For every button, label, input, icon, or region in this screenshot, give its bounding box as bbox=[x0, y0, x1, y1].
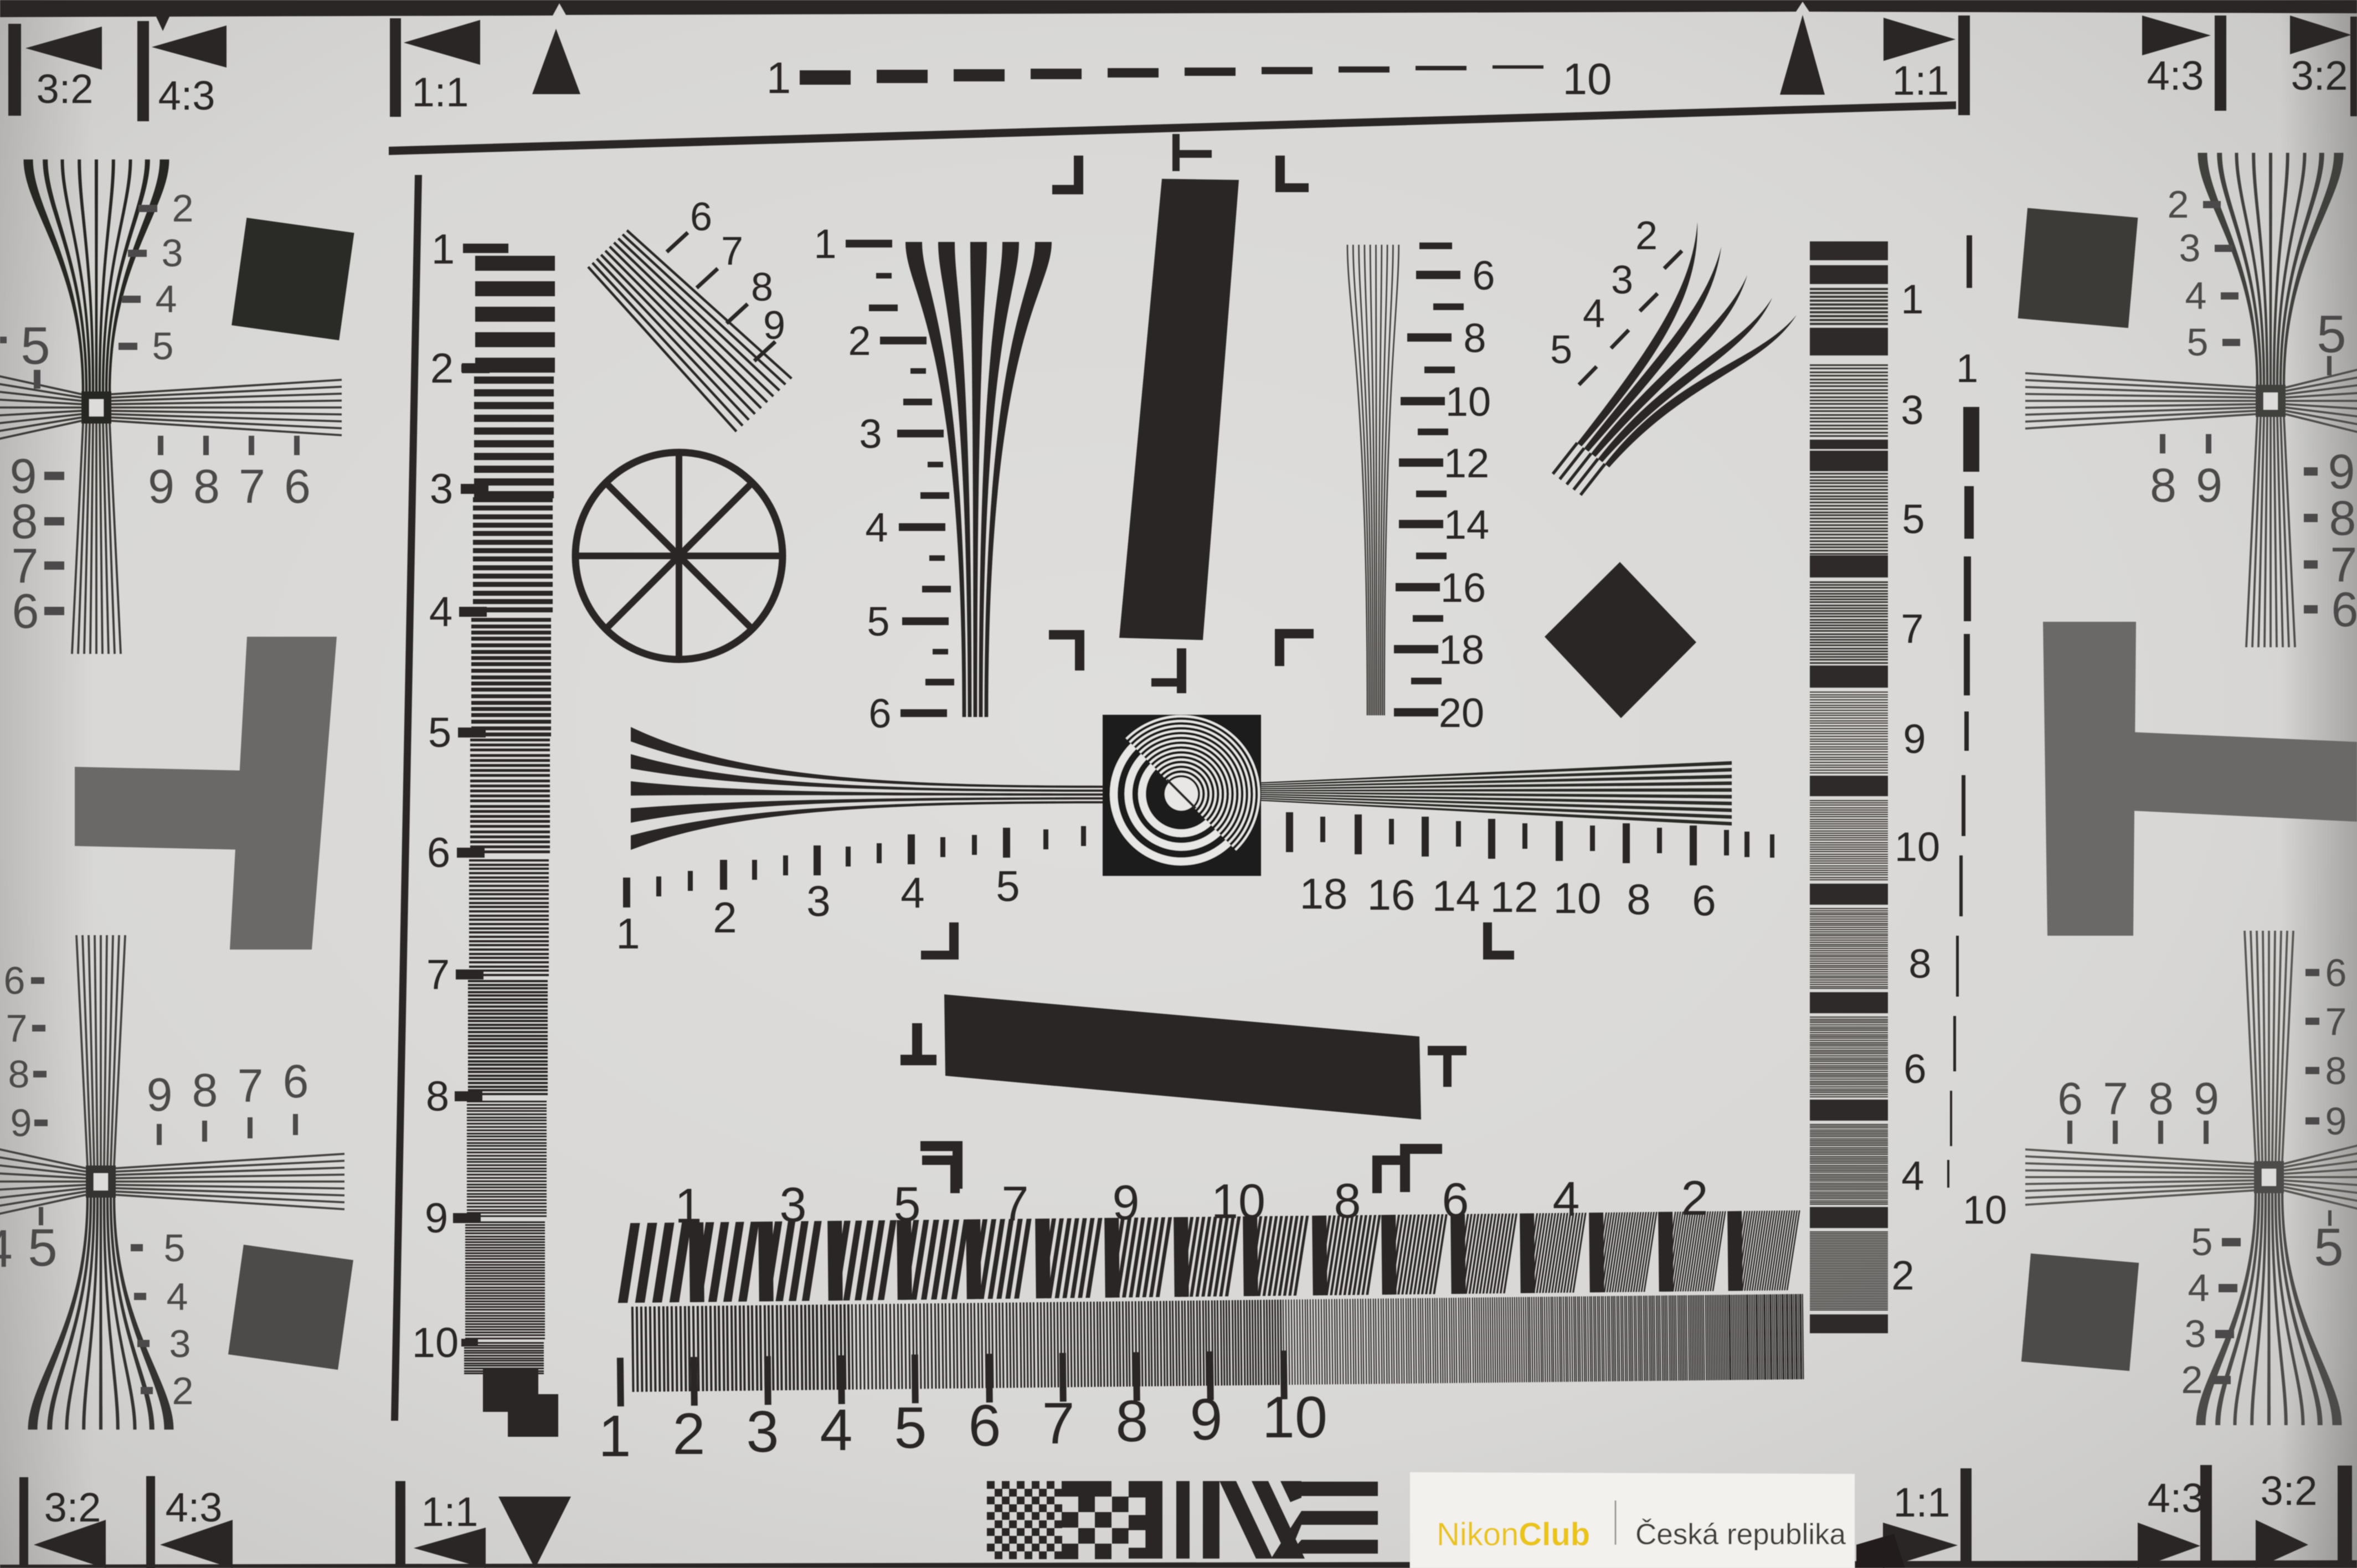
svg-text:14: 14 bbox=[1432, 871, 1480, 920]
svg-text:8: 8 bbox=[1463, 315, 1486, 361]
svg-text:6: 6 bbox=[283, 1055, 309, 1107]
svg-text:7: 7 bbox=[2325, 1000, 2347, 1043]
svg-text:4: 4 bbox=[865, 504, 888, 550]
svg-text:1: 1 bbox=[1901, 276, 1923, 322]
svg-text:6: 6 bbox=[2057, 1074, 2083, 1124]
svg-text:10: 10 bbox=[1262, 1385, 1327, 1450]
svg-text:5: 5 bbox=[164, 1226, 186, 1270]
svg-text:8: 8 bbox=[2325, 1049, 2347, 1092]
svg-text:2: 2 bbox=[848, 318, 871, 364]
svg-text:4: 4 bbox=[429, 589, 452, 636]
svg-text:9: 9 bbox=[2194, 1074, 2219, 1124]
svg-text:7: 7 bbox=[1901, 606, 1923, 652]
svg-text:14: 14 bbox=[1444, 502, 1489, 548]
svg-text:7: 7 bbox=[6, 1007, 28, 1050]
svg-text:3: 3 bbox=[1611, 258, 1633, 302]
svg-text:8: 8 bbox=[751, 265, 773, 310]
svg-text:6: 6 bbox=[1692, 876, 1716, 925]
svg-text:4: 4 bbox=[2188, 1266, 2210, 1309]
svg-text:3: 3 bbox=[806, 876, 830, 925]
svg-text:4: 4 bbox=[156, 277, 177, 321]
svg-text:1: 1 bbox=[766, 53, 791, 102]
svg-text:5: 5 bbox=[2187, 321, 2209, 364]
svg-text:3: 3 bbox=[859, 411, 882, 457]
svg-text:2: 2 bbox=[713, 893, 737, 942]
svg-text:1: 1 bbox=[1956, 347, 1978, 391]
svg-text:3: 3 bbox=[430, 466, 453, 513]
svg-text:8: 8 bbox=[426, 1073, 449, 1120]
svg-text:3:2: 3:2 bbox=[2291, 53, 2348, 99]
svg-text:1:1: 1:1 bbox=[412, 69, 469, 115]
svg-text:5: 5 bbox=[1550, 328, 1572, 372]
svg-text:18: 18 bbox=[1439, 627, 1484, 673]
svg-text:6: 6 bbox=[868, 690, 891, 736]
svg-text:16: 16 bbox=[1367, 870, 1416, 919]
svg-text:7: 7 bbox=[1042, 1391, 1075, 1456]
svg-text:8: 8 bbox=[2150, 459, 2176, 512]
svg-text:10: 10 bbox=[1563, 54, 1612, 104]
svg-text:4: 4 bbox=[900, 868, 924, 917]
svg-text:8: 8 bbox=[2148, 1074, 2174, 1124]
svg-text:3:2: 3:2 bbox=[44, 1484, 101, 1530]
svg-text:4:3: 4:3 bbox=[2147, 53, 2204, 99]
svg-text:5: 5 bbox=[28, 1218, 57, 1277]
svg-text:5: 5 bbox=[996, 862, 1020, 910]
svg-text:9: 9 bbox=[2196, 459, 2222, 512]
svg-text:4: 4 bbox=[0, 1219, 13, 1278]
svg-text:6: 6 bbox=[2332, 582, 2357, 637]
svg-text:9: 9 bbox=[148, 460, 174, 513]
svg-text:4: 4 bbox=[1583, 292, 1605, 336]
svg-text:7: 7 bbox=[239, 460, 265, 513]
svg-text:1:1: 1:1 bbox=[1893, 1479, 1951, 1525]
svg-text:7: 7 bbox=[426, 951, 450, 998]
svg-text:5: 5 bbox=[1902, 496, 1924, 542]
svg-text:3: 3 bbox=[1901, 387, 1923, 433]
svg-text:8: 8 bbox=[193, 460, 220, 513]
svg-text:12: 12 bbox=[1490, 873, 1538, 921]
svg-text:4: 4 bbox=[2185, 274, 2207, 317]
svg-text:6: 6 bbox=[284, 460, 311, 513]
svg-text:1: 1 bbox=[616, 909, 640, 958]
svg-text:2: 2 bbox=[2181, 1358, 2203, 1401]
svg-text:9: 9 bbox=[11, 1101, 32, 1144]
svg-text:6: 6 bbox=[969, 1393, 1001, 1458]
svg-text:NikonClub: NikonClub bbox=[1437, 1517, 1590, 1552]
svg-text:10: 10 bbox=[1963, 1188, 2007, 1232]
svg-text:3: 3 bbox=[169, 1322, 191, 1365]
svg-text:3: 3 bbox=[2185, 1312, 2206, 1355]
svg-text:7: 7 bbox=[1002, 1176, 1029, 1231]
svg-text:10: 10 bbox=[412, 1319, 459, 1366]
svg-text:5: 5 bbox=[428, 709, 451, 756]
svg-text:7: 7 bbox=[2103, 1074, 2128, 1124]
svg-text:2: 2 bbox=[1891, 1252, 1914, 1298]
svg-text:2: 2 bbox=[1635, 214, 1658, 258]
svg-text:4:3: 4:3 bbox=[2148, 1475, 2205, 1521]
svg-text:4:3: 4:3 bbox=[158, 73, 215, 118]
svg-text:4:3: 4:3 bbox=[166, 1484, 223, 1530]
svg-text:5: 5 bbox=[894, 1395, 927, 1461]
svg-text:12: 12 bbox=[1444, 440, 1489, 486]
svg-text:10: 10 bbox=[1445, 379, 1491, 425]
svg-text:7: 7 bbox=[721, 229, 743, 274]
svg-text:8: 8 bbox=[1627, 875, 1650, 924]
svg-text:3:2: 3:2 bbox=[37, 66, 94, 112]
svg-text:5: 5 bbox=[152, 324, 174, 368]
svg-text:6: 6 bbox=[690, 195, 712, 239]
svg-text:9: 9 bbox=[2325, 1100, 2347, 1143]
svg-text:1:1: 1:1 bbox=[1892, 58, 1949, 104]
svg-text:5: 5 bbox=[2314, 1218, 2343, 1277]
svg-text:6: 6 bbox=[427, 829, 450, 876]
svg-text:1: 1 bbox=[814, 221, 836, 267]
svg-text:10: 10 bbox=[1553, 874, 1602, 922]
svg-text:3: 3 bbox=[162, 231, 183, 275]
svg-text:8: 8 bbox=[1908, 941, 1931, 987]
svg-text:5: 5 bbox=[2317, 305, 2346, 364]
svg-text:9: 9 bbox=[1190, 1387, 1223, 1452]
svg-text:20: 20 bbox=[1439, 690, 1484, 736]
svg-text:8: 8 bbox=[8, 1053, 30, 1096]
svg-text:3: 3 bbox=[747, 1399, 779, 1464]
svg-text:10: 10 bbox=[1895, 824, 1940, 870]
svg-text:3:2: 3:2 bbox=[2261, 1468, 2318, 1514]
svg-text:5: 5 bbox=[20, 316, 50, 375]
svg-text:18: 18 bbox=[1300, 869, 1348, 918]
svg-text:2: 2 bbox=[2168, 183, 2189, 226]
svg-text:1: 1 bbox=[599, 1404, 631, 1469]
svg-text:1:1: 1:1 bbox=[421, 1489, 478, 1535]
svg-text:4: 4 bbox=[167, 1275, 188, 1318]
svg-text:5: 5 bbox=[867, 599, 889, 644]
svg-text:9: 9 bbox=[425, 1195, 448, 1242]
svg-text:Česká republika: Česká republika bbox=[1635, 1518, 1846, 1551]
svg-text:16: 16 bbox=[1440, 565, 1486, 611]
svg-text:9: 9 bbox=[1903, 716, 1926, 762]
svg-text:3: 3 bbox=[2179, 226, 2201, 270]
svg-text:8: 8 bbox=[192, 1064, 218, 1116]
svg-text:4: 4 bbox=[820, 1397, 853, 1463]
svg-text:6: 6 bbox=[12, 584, 39, 638]
svg-text:6: 6 bbox=[4, 959, 25, 1002]
svg-text:6: 6 bbox=[2325, 951, 2347, 994]
svg-text:7: 7 bbox=[238, 1060, 264, 1112]
svg-text:1: 1 bbox=[431, 226, 455, 273]
svg-text:6: 6 bbox=[1903, 1046, 1926, 1092]
svg-text:9: 9 bbox=[147, 1069, 173, 1121]
svg-text:2: 2 bbox=[172, 187, 194, 230]
svg-text:4: 4 bbox=[1901, 1153, 1924, 1199]
svg-text:2: 2 bbox=[673, 1401, 706, 1467]
svg-text:5: 5 bbox=[2191, 1220, 2213, 1263]
svg-text:2: 2 bbox=[430, 345, 454, 392]
svg-text:2: 2 bbox=[172, 1369, 194, 1412]
svg-text:8: 8 bbox=[1116, 1389, 1149, 1454]
svg-text:6: 6 bbox=[1472, 252, 1495, 298]
